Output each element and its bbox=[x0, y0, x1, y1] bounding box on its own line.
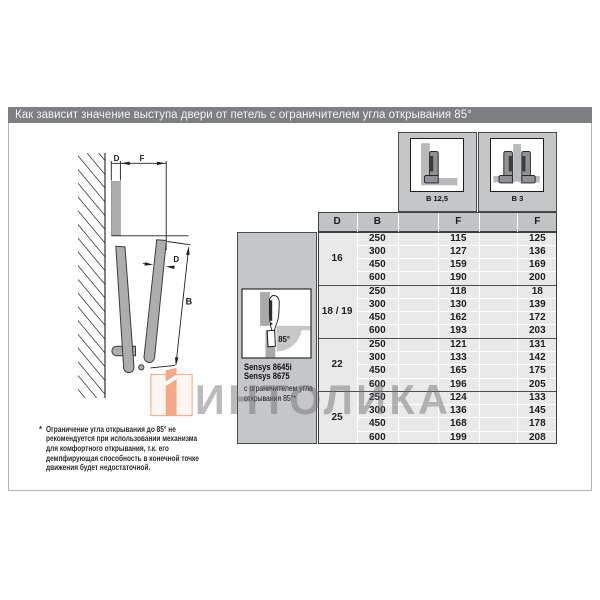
svg-text:85°: 85° bbox=[278, 335, 290, 344]
svg-text:B: B bbox=[186, 296, 193, 306]
svg-text:F: F bbox=[139, 154, 144, 163]
svg-text:D: D bbox=[114, 154, 120, 163]
svg-text:D: D bbox=[173, 255, 179, 264]
